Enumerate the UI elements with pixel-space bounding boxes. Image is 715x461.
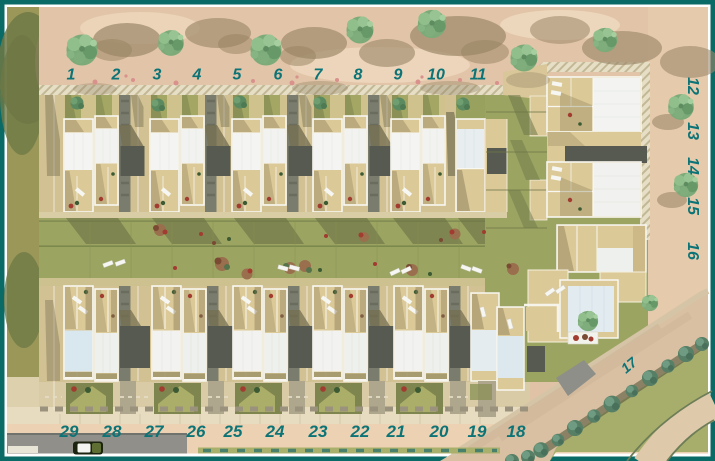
svg-text:7: 7 — [314, 67, 324, 84]
svg-text:26: 26 — [186, 422, 206, 441]
svg-text:10: 10 — [427, 67, 445, 84]
svg-text:20: 20 — [429, 422, 449, 441]
svg-text:4: 4 — [192, 67, 202, 84]
svg-text:14: 14 — [684, 157, 701, 175]
svg-text:1: 1 — [67, 67, 76, 84]
svg-text:23: 23 — [308, 422, 328, 441]
svg-text:21: 21 — [386, 422, 406, 441]
svg-text:27: 27 — [144, 422, 165, 441]
svg-text:18: 18 — [507, 422, 526, 441]
svg-text:28: 28 — [102, 422, 122, 441]
svg-text:24: 24 — [265, 422, 285, 441]
svg-text:29: 29 — [59, 422, 79, 441]
svg-text:22: 22 — [350, 422, 370, 441]
svg-text:8: 8 — [354, 67, 363, 84]
svg-text:19: 19 — [468, 422, 487, 441]
svg-text:11: 11 — [470, 67, 487, 84]
svg-text:6: 6 — [274, 67, 283, 84]
svg-text:3: 3 — [153, 67, 162, 84]
svg-text:16: 16 — [684, 242, 701, 260]
svg-text:13: 13 — [684, 122, 701, 140]
svg-text:9: 9 — [394, 67, 403, 84]
svg-text:2: 2 — [111, 67, 121, 84]
svg-text:15: 15 — [684, 197, 701, 216]
svg-text:12: 12 — [684, 77, 701, 95]
svg-text:5: 5 — [233, 67, 243, 84]
svg-text:25: 25 — [223, 422, 243, 441]
